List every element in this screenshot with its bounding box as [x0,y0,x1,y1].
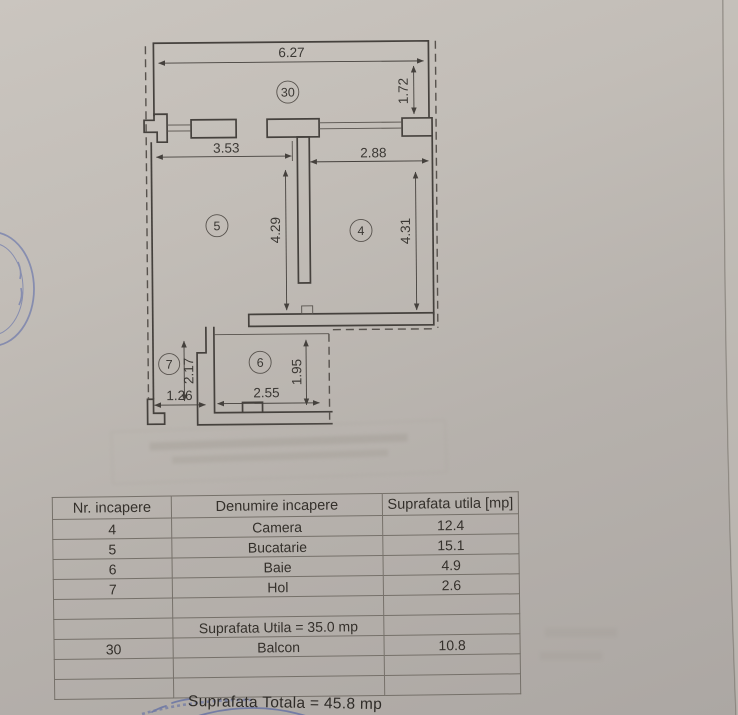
dim-label-camera-depth: 4.31 [398,218,413,244]
cell-area: 2.6 [383,574,519,596]
room-number-bath: 6 [257,356,264,370]
dimension-lines [152,61,431,406]
cell-nr: 4 [53,518,172,539]
dim-label-kitchen-width: 3.53 [213,140,239,155]
page-edge-shade [723,0,738,715]
room-number-hall: 7 [166,358,173,372]
header-suprafata-utila: Suprafata utila [mp] [382,492,518,516]
cell-name: Hol [172,575,383,598]
cell-area: 12.4 [383,514,519,536]
cell-nr: 5 [53,538,172,559]
dim-label-bath-width: 2.55 [253,385,279,400]
header-denumire-incapere: Denumire incapere [171,493,382,518]
room-number-kitchen: 5 [213,219,220,233]
areas-table-container: Nr. incapere Denumire incapere Suprafata… [52,491,520,700]
cell-name: Balcon [173,635,384,658]
stamp-left [0,232,34,346]
cell-nr: 30 [54,638,173,659]
dim-label-hall-depth: 2.17 [181,358,196,384]
dim-label-kitchen-depth: 4.29 [268,217,283,243]
dim-label-hall-width: 1.26 [166,388,192,403]
cell-nr: 7 [53,578,172,599]
dim-label-bath-depth: 1.95 [289,359,304,385]
dim-label-balcony-depth: 1.72 [396,78,411,104]
header-nr-incapere: Nr. incapere [52,496,171,519]
scanned-document-page: 6.27 1.72 3.53 2.88 4.29 4.31 2.17 1.26 … [0,0,738,715]
cell-area: 10.8 [384,634,520,656]
subtotal-label: Suprafata Utila = 35.0 mp [173,615,384,638]
total-area-label: Suprafata Totala = 45.8 mp [188,693,382,714]
room-number-balcony: 30 [281,85,295,99]
cell-name: Baie [172,555,383,578]
cell-name: Camera [172,515,383,538]
cell-nr: 6 [53,558,172,579]
cell-area: 15.1 [383,534,519,556]
room-number-camera: 4 [357,224,364,238]
areas-table: Nr. incapere Denumire incapere Suprafata… [52,491,521,700]
bleed-through-smudge-right [540,628,617,660]
cell-area: 4.9 [383,554,519,576]
dim-label-camera-width: 2.88 [360,145,386,160]
dim-label-balcony-width: 6.27 [278,45,304,60]
cell-name: Bucatarie [172,535,383,558]
bleed-through-smudge [111,420,447,484]
